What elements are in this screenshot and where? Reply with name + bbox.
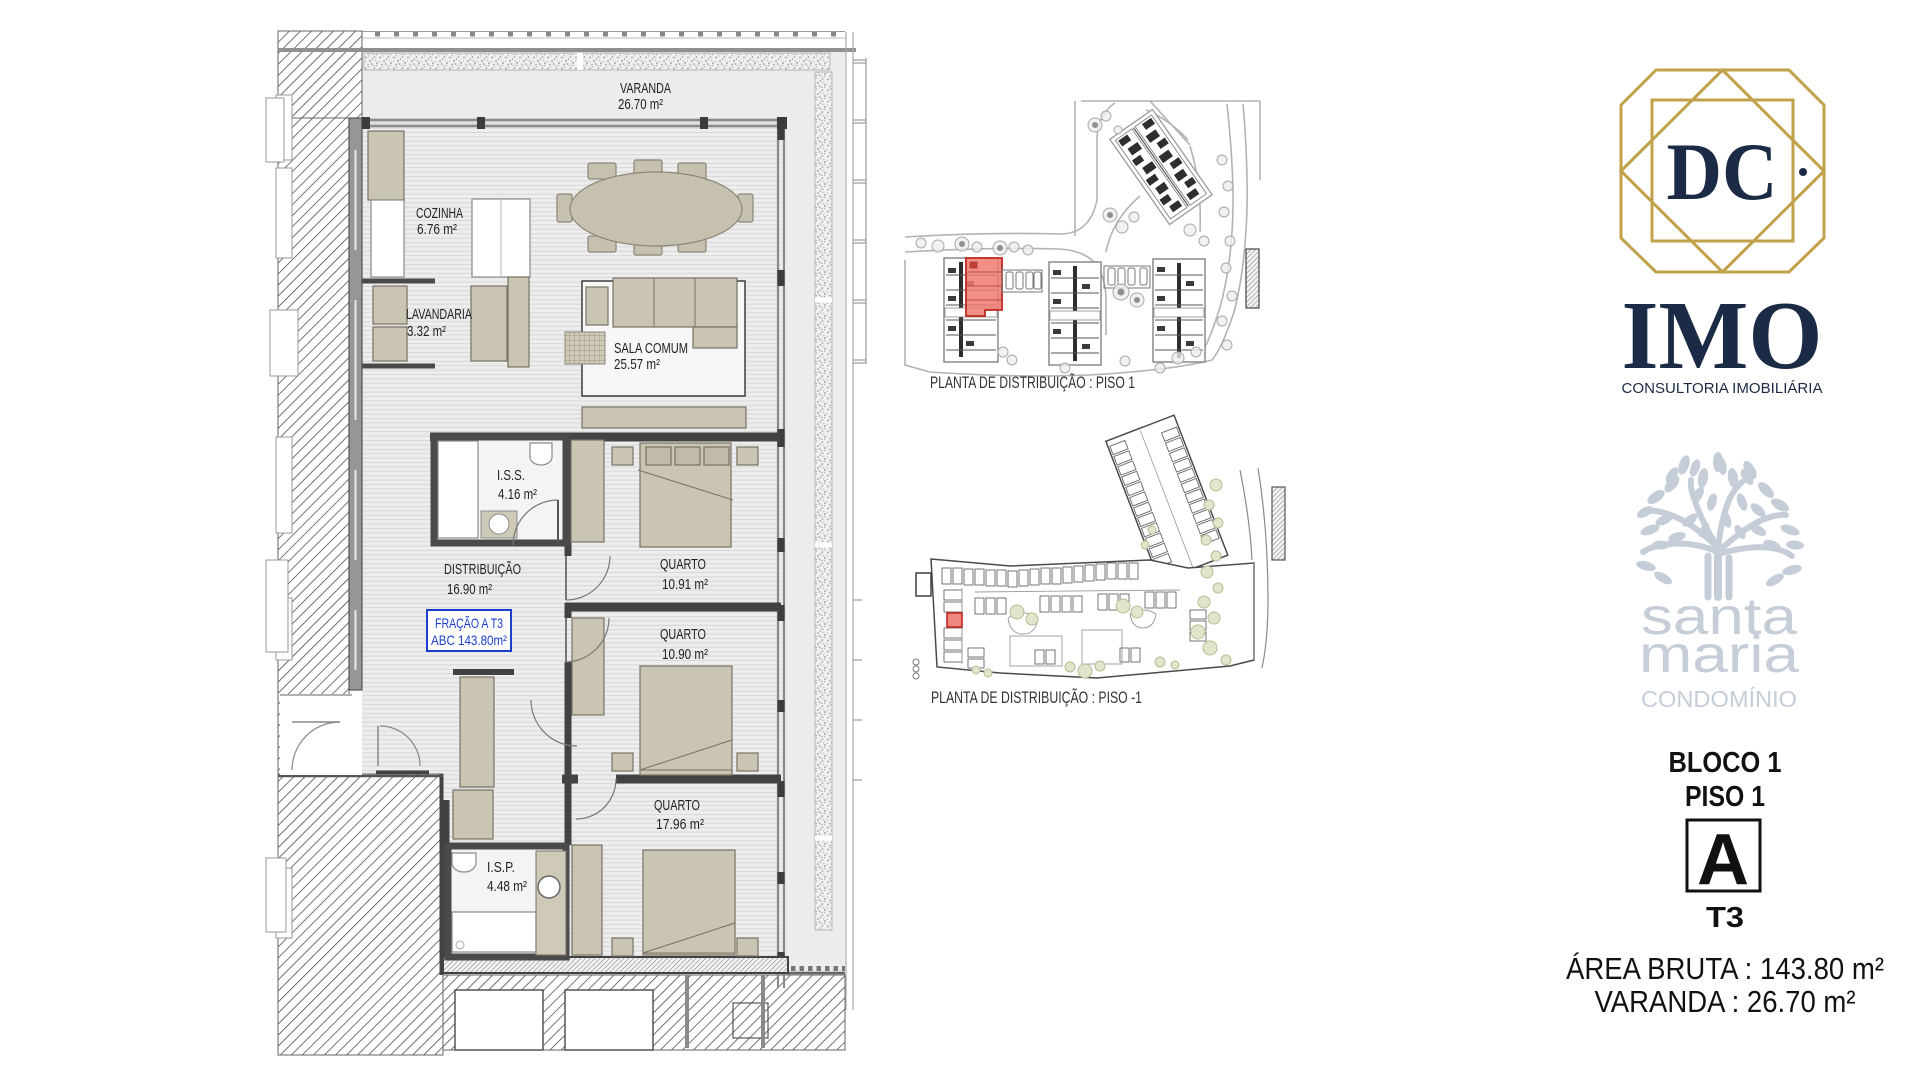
svg-text:PLANTA DE DISTRIBUIÇÃO : PISO: PLANTA DE DISTRIBUIÇÃO : PISO -1 — [931, 688, 1142, 707]
svg-text:QUARTO: QUARTO — [660, 557, 706, 573]
svg-text:PLANTA DE DISTRIBUIÇÃO : PISO: PLANTA DE DISTRIBUIÇÃO : PISO 1 — [930, 373, 1135, 392]
svg-text:COZINHA: COZINHA — [416, 206, 463, 222]
svg-text:10.90 m²: 10.90 m² — [662, 647, 708, 663]
svg-text:A: A — [1697, 820, 1749, 900]
svg-text:I.S.S.: I.S.S. — [497, 468, 525, 484]
svg-text:26.70 m²: 26.70 m² — [618, 97, 663, 113]
svg-text:DISTRIBUIÇÃO: DISTRIBUIÇÃO — [444, 561, 521, 578]
svg-text:ÁREA BRUTA : 143.80 m²: ÁREA BRUTA : 143.80 m² — [1566, 951, 1884, 986]
svg-text:25.57 m²: 25.57 m² — [614, 357, 660, 373]
svg-text:VARANDA : 26.70 m²: VARANDA : 26.70 m² — [1595, 984, 1856, 1019]
svg-text:16.90 m²: 16.90 m² — [447, 582, 492, 598]
svg-text:3.32 m²: 3.32 m² — [407, 324, 446, 340]
svg-text:6.76 m²: 6.76 m² — [417, 222, 457, 238]
svg-text:QUARTO: QUARTO — [654, 798, 700, 814]
svg-text:FRAÇÃO A T3: FRAÇÃO A T3 — [435, 615, 503, 631]
svg-text:SALA COMUM: SALA COMUM — [614, 341, 688, 357]
svg-text:10.91 m²: 10.91 m² — [662, 577, 708, 593]
svg-text:IMO: IMO — [1622, 282, 1823, 389]
svg-text:VARANDA: VARANDA — [620, 81, 671, 97]
svg-text:4.16 m²: 4.16 m² — [498, 487, 537, 503]
svg-text:BLOCO 1: BLOCO 1 — [1669, 747, 1782, 779]
svg-text:maria: maria — [1639, 626, 1799, 684]
svg-text:17.96 m²: 17.96 m² — [656, 817, 704, 833]
svg-text:DC: DC — [1667, 126, 1778, 217]
svg-text:ABC 143.80m²: ABC 143.80m² — [431, 632, 507, 648]
svg-text:LAVANDARIA: LAVANDARIA — [406, 307, 472, 323]
svg-text:4.48 m²: 4.48 m² — [487, 879, 527, 895]
svg-text:QUARTO: QUARTO — [660, 627, 706, 643]
svg-text:CONDOMÍNIO: CONDOMÍNIO — [1641, 686, 1797, 712]
svg-text:CONSULTORIA IMOBILIÁRIA: CONSULTORIA IMOBILIÁRIA — [1622, 380, 1823, 397]
svg-text:PISO 1: PISO 1 — [1685, 781, 1765, 813]
svg-text:T3: T3 — [1706, 902, 1744, 934]
svg-text:I.S.P.: I.S.P. — [487, 860, 515, 876]
